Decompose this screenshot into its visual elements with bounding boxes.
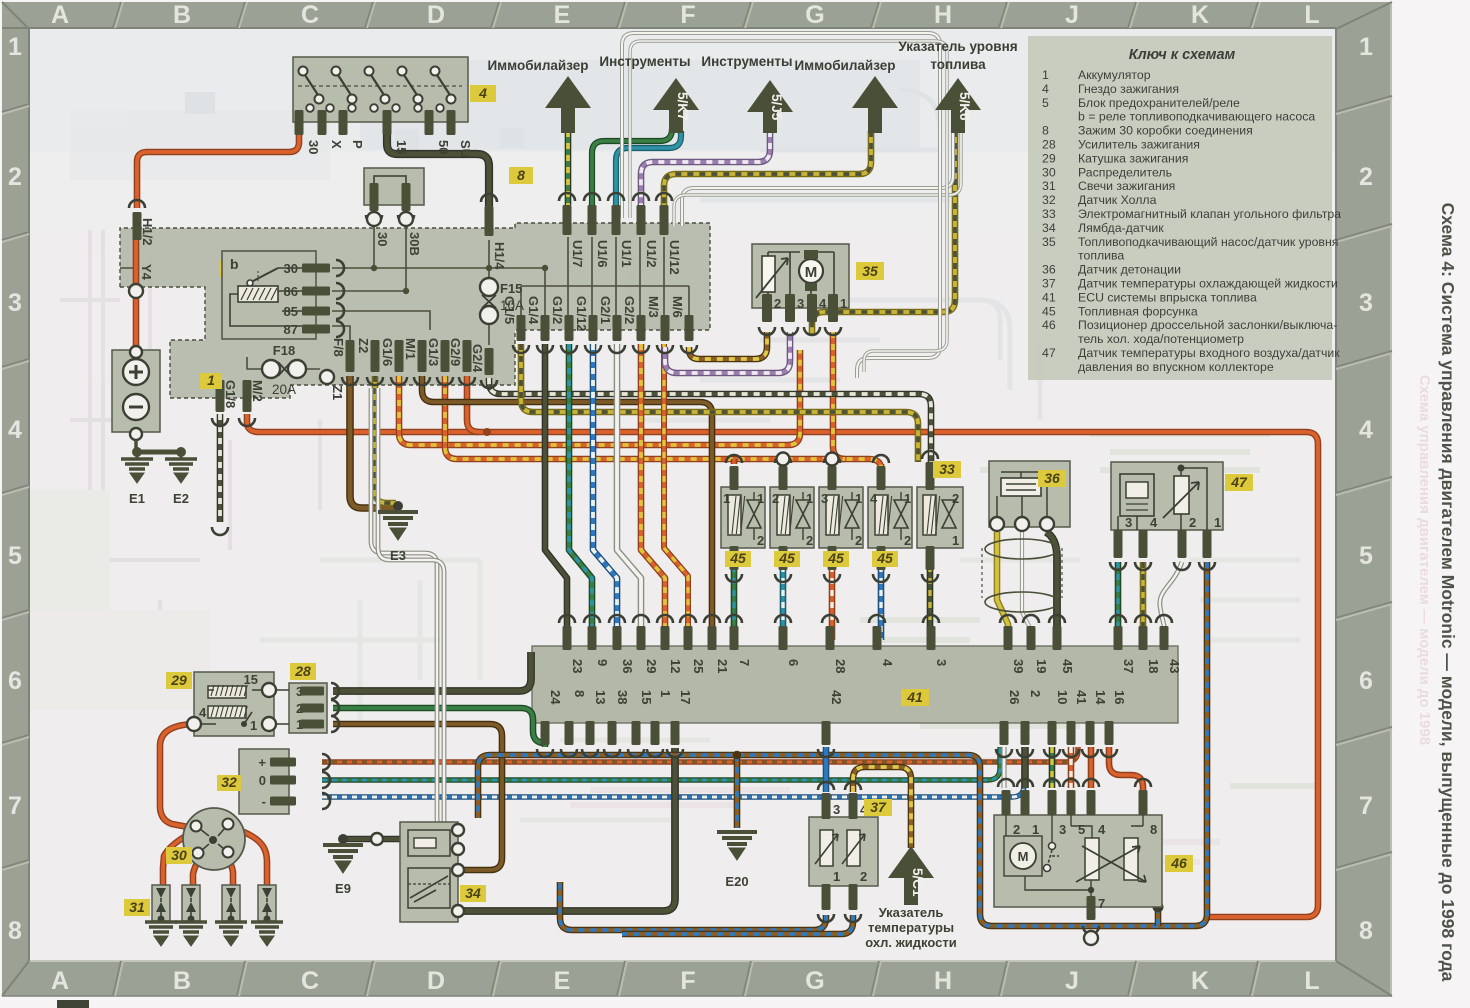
svg-text:топлива: топлива [1078, 249, 1124, 263]
svg-text:температуры: температуры [868, 920, 954, 935]
svg-text:Лямбда-датчик: Лямбда-датчик [1078, 221, 1164, 235]
svg-text:7: 7 [737, 659, 752, 666]
svg-text:10: 10 [1055, 690, 1070, 704]
svg-text:9: 9 [595, 659, 610, 666]
svg-text:A: A [51, 967, 69, 995]
svg-text:0: 0 [259, 773, 266, 788]
svg-text:2: 2 [904, 533, 911, 548]
svg-text:Датчик Холла: Датчик Холла [1078, 193, 1157, 207]
svg-text:1: 1 [8, 33, 22, 61]
svg-text:топлива: топлива [930, 57, 986, 72]
svg-text:4: 4 [1042, 82, 1049, 96]
svg-text:2: 2 [772, 491, 779, 506]
svg-text:47: 47 [1230, 474, 1248, 490]
svg-text:2: 2 [952, 491, 959, 506]
svg-text:Указатель уровня: Указатель уровня [898, 39, 1017, 54]
svg-text:U1/7: U1/7 [570, 240, 585, 267]
svg-text:G2/9: G2/9 [448, 338, 463, 366]
svg-text:Схема 4: Система управления дв: Схема 4: Система управления двигателем M… [1438, 203, 1458, 982]
svg-text:5: 5 [1078, 822, 1085, 837]
svg-text:46: 46 [1170, 855, 1187, 871]
svg-text:U1/6: U1/6 [595, 240, 610, 267]
svg-text:36: 36 [1044, 470, 1060, 486]
svg-text:G: G [805, 1, 824, 29]
svg-text:37: 37 [1121, 659, 1136, 673]
svg-text:6: 6 [8, 667, 22, 695]
svg-text:Y4: Y4 [139, 264, 154, 281]
svg-text:18: 18 [1146, 659, 1161, 673]
svg-text:29: 29 [1042, 151, 1056, 165]
svg-text:8: 8 [572, 690, 587, 697]
svg-text:G1/2: G1/2 [550, 296, 565, 324]
svg-text:6: 6 [786, 659, 801, 666]
svg-text:-: - [262, 794, 266, 809]
svg-text:37: 37 [1042, 277, 1056, 291]
svg-text:Датчик детонации: Датчик детонации [1078, 263, 1181, 277]
svg-text:47: 47 [1042, 346, 1056, 360]
svg-text:Гнездо зажигания: Гнездо зажигания [1078, 82, 1179, 96]
svg-text:3: 3 [8, 289, 22, 317]
svg-text:4: 4 [819, 296, 827, 311]
svg-text:6: 6 [1359, 667, 1373, 695]
svg-text:21: 21 [715, 659, 730, 673]
svg-text:33: 33 [1042, 207, 1056, 221]
svg-text:4: 4 [1359, 416, 1373, 444]
svg-text:26: 26 [1007, 690, 1022, 704]
svg-text:29: 29 [170, 672, 187, 688]
svg-text:Указатель: Указатель [879, 905, 944, 920]
svg-text:5/K7: 5/K7 [675, 92, 690, 121]
svg-text:5: 5 [1359, 542, 1373, 570]
svg-text:13: 13 [593, 690, 608, 704]
svg-text:B: B [173, 1, 191, 29]
svg-text:20A: 20A [272, 382, 296, 397]
svg-text:C: C [301, 967, 319, 995]
svg-text:8: 8 [517, 167, 525, 183]
svg-text:G2/2: G2/2 [622, 296, 637, 324]
svg-text:B: B [173, 967, 191, 995]
svg-text:E3: E3 [390, 548, 406, 563]
svg-text:23: 23 [570, 659, 585, 673]
svg-text:5: 5 [8, 542, 22, 570]
svg-text:45: 45 [1042, 304, 1056, 318]
svg-text:E1: E1 [129, 491, 145, 506]
svg-text:12: 12 [668, 659, 683, 673]
svg-text:SU: SU [458, 140, 473, 158]
svg-text:8: 8 [8, 917, 22, 945]
svg-text:14: 14 [1093, 690, 1108, 705]
svg-text:F: F [680, 967, 695, 995]
svg-text:28: 28 [1042, 138, 1056, 152]
svg-text:F18: F18 [273, 343, 295, 358]
svg-text:30: 30 [171, 847, 187, 863]
svg-text:3: 3 [797, 296, 804, 311]
svg-text:G1/8: G1/8 [223, 380, 238, 408]
svg-text:M: M [1018, 849, 1029, 864]
svg-text:E9: E9 [335, 881, 351, 896]
svg-text:25: 25 [691, 659, 706, 673]
svg-text:2: 2 [860, 869, 867, 884]
svg-text:Z2: Z2 [356, 338, 371, 353]
svg-text:2: 2 [1028, 690, 1043, 697]
svg-text:8: 8 [1150, 822, 1157, 837]
svg-text:4: 4 [8, 416, 22, 444]
svg-text:28: 28 [294, 663, 311, 679]
svg-text:Зажим 30 коробки соединения: Зажим 30 коробки соединения [1078, 124, 1253, 138]
svg-text:39: 39 [1011, 659, 1026, 673]
svg-text:87: 87 [284, 322, 298, 337]
svg-text:7: 7 [1359, 792, 1373, 820]
svg-text:1: 1 [952, 533, 959, 548]
svg-text:7: 7 [8, 792, 22, 820]
svg-text:C: C [301, 1, 319, 29]
svg-text:34: 34 [465, 885, 481, 901]
svg-text:H1/4: H1/4 [492, 242, 507, 270]
svg-text:M: M [805, 264, 818, 281]
svg-text:41: 41 [1042, 290, 1056, 304]
svg-text:U1/12: U1/12 [667, 240, 682, 275]
svg-text:2: 2 [774, 296, 781, 311]
svg-text:Свечи зажигания: Свечи зажигания [1078, 179, 1175, 193]
svg-text:7: 7 [1098, 896, 1105, 911]
svg-text:Топливоподкачивающий насос/дат: Топливоподкачивающий насос/датчик уровня [1078, 235, 1338, 249]
svg-text:1: 1 [806, 491, 813, 506]
svg-text:30: 30 [284, 261, 298, 276]
svg-text:37: 37 [870, 799, 887, 815]
svg-text:Иммобилайзер: Иммобилайзер [794, 58, 895, 73]
svg-text:F15: F15 [500, 281, 522, 296]
svg-text:1: 1 [904, 491, 911, 506]
svg-text:J: J [1065, 1, 1079, 29]
svg-text:Электромагнитный клапан угольн: Электромагнитный клапан угольного фильтр… [1078, 207, 1341, 221]
svg-text:1: 1 [1032, 822, 1039, 837]
svg-text:5/K6: 5/K6 [957, 92, 972, 121]
svg-text:Топливная форсунка: Топливная форсунка [1078, 304, 1198, 318]
svg-text:41: 41 [906, 689, 923, 705]
svg-text:G1/12: G1/12 [574, 296, 589, 331]
svg-text:32: 32 [221, 774, 237, 790]
svg-text:1: 1 [658, 690, 673, 697]
svg-text:2: 2 [1189, 515, 1196, 530]
svg-text:42: 42 [829, 690, 844, 704]
svg-text:4: 4 [880, 659, 895, 667]
svg-text:2: 2 [855, 533, 862, 548]
svg-text:4: 4 [1150, 515, 1158, 530]
svg-text:M/2: M/2 [250, 380, 265, 402]
svg-text:1: 1 [855, 491, 862, 506]
svg-text:31: 31 [1042, 179, 1056, 193]
svg-text:5: 5 [1042, 96, 1049, 110]
svg-text:45: 45 [1060, 659, 1075, 673]
svg-text:15: 15 [639, 690, 654, 704]
svg-text:4: 4 [870, 491, 878, 506]
svg-text:41: 41 [1074, 690, 1089, 704]
svg-text:G: G [805, 967, 824, 995]
svg-text:2: 2 [8, 163, 22, 191]
svg-text:8: 8 [1042, 124, 1049, 138]
svg-text:3: 3 [821, 491, 828, 506]
svg-text:M/6: M/6 [670, 296, 685, 318]
svg-text:M/1: M/1 [403, 338, 418, 360]
svg-text:тель хол. хода/потенциометр: тель хол. хода/потенциометр [1078, 332, 1244, 346]
svg-text:K: K [1191, 967, 1209, 995]
svg-text:Схема управления двигателем —: Схема управления двигателем — модели до … [1416, 375, 1433, 745]
svg-text:b = реле топливоподкачивающего: b = реле топливоподкачивающего насоса [1078, 110, 1315, 124]
svg-text:3: 3 [1059, 822, 1066, 837]
svg-text:L: L [1304, 1, 1319, 29]
svg-text:Катушка зажигания: Катушка зажигания [1078, 151, 1188, 165]
svg-text:G1/6: G1/6 [380, 338, 395, 366]
svg-text:Ключ к схемам: Ключ к схемам [1129, 47, 1236, 63]
svg-text:15: 15 [244, 672, 258, 687]
svg-text:F/8: F/8 [331, 338, 346, 357]
svg-text:45: 45 [729, 550, 746, 566]
svg-text:F: F [680, 1, 695, 29]
svg-text:28: 28 [833, 659, 848, 673]
svg-text:43: 43 [1167, 659, 1182, 673]
svg-text:1: 1 [1042, 68, 1049, 82]
svg-text:1: 1 [250, 718, 257, 733]
svg-text:G1/3: G1/3 [426, 338, 441, 366]
svg-text:17: 17 [678, 690, 693, 704]
svg-text:1: 1 [833, 869, 840, 884]
svg-text:46: 46 [1042, 318, 1056, 332]
svg-text:30: 30 [1042, 165, 1056, 179]
svg-text:G2/4: G2/4 [470, 344, 485, 373]
svg-text:Инструменты: Инструменты [701, 54, 792, 69]
svg-text:Z1: Z1 [330, 385, 345, 400]
svg-text:давления во впускном коллектор: давления во впускном коллекторе [1078, 360, 1274, 374]
svg-text:85: 85 [284, 304, 298, 319]
svg-text:Позиционер дроссельной заслонк: Позиционер дроссельной заслонки/выключа- [1078, 318, 1337, 332]
svg-text:29: 29 [644, 659, 659, 673]
svg-text:86: 86 [284, 284, 298, 299]
svg-text:30: 30 [306, 140, 321, 154]
svg-text:ECU системы впрыска топлива: ECU системы впрыска топлива [1078, 290, 1257, 304]
svg-text:1: 1 [757, 491, 764, 506]
svg-text:32: 32 [1042, 193, 1056, 207]
svg-text:+: + [258, 755, 266, 770]
svg-text:3: 3 [934, 659, 949, 666]
svg-text:G1/5: G1/5 [502, 296, 517, 324]
svg-text:H1/2: H1/2 [140, 218, 155, 245]
svg-text:D: D [427, 1, 445, 29]
svg-text:45: 45 [876, 550, 893, 566]
svg-text:L: L [1304, 967, 1319, 995]
svg-text:19: 19 [1034, 659, 1049, 673]
svg-text:Иммобилайзер: Иммобилайзер [487, 58, 588, 73]
svg-text:34: 34 [1042, 221, 1056, 235]
svg-text:Аккумулятор: Аккумулятор [1078, 68, 1151, 82]
svg-text:4: 4 [199, 705, 207, 720]
svg-text:5/J5: 5/J5 [769, 94, 784, 121]
svg-text:24: 24 [548, 690, 563, 705]
svg-text:35: 35 [1042, 235, 1056, 249]
svg-text:1: 1 [723, 491, 730, 506]
svg-text:16: 16 [1112, 690, 1127, 704]
svg-text:Распределитель: Распределитель [1078, 165, 1172, 179]
svg-text:2: 2 [1359, 163, 1373, 191]
svg-text:2: 2 [806, 533, 813, 548]
svg-text:H: H [934, 1, 952, 29]
svg-text:1: 1 [840, 296, 847, 311]
svg-text:4: 4 [478, 85, 487, 101]
svg-text:охл. жидкости: охл. жидкости [865, 935, 956, 950]
svg-text:4: 4 [1098, 822, 1106, 837]
svg-text:3: 3 [833, 802, 840, 817]
svg-text:30: 30 [375, 232, 390, 246]
svg-text:1: 1 [1359, 33, 1373, 61]
svg-text:E20: E20 [725, 874, 748, 889]
svg-text:33: 33 [939, 461, 955, 477]
svg-text:50: 50 [436, 140, 451, 154]
svg-text:2: 2 [757, 533, 764, 548]
svg-text:E: E [554, 1, 571, 29]
svg-text:Датчик температуры охлаждающей: Датчик температуры охлаждающей жидкости [1078, 277, 1338, 291]
svg-text:G2/1: G2/1 [598, 296, 613, 324]
svg-text:38: 38 [615, 690, 630, 704]
svg-text:Инструменты: Инструменты [599, 54, 690, 69]
svg-text:5/C1: 5/C1 [910, 868, 925, 897]
svg-text:45: 45 [827, 550, 844, 566]
svg-text:36: 36 [1042, 263, 1056, 277]
svg-text:X: X [329, 140, 344, 149]
svg-text:1: 1 [1214, 515, 1221, 530]
svg-text:U1/1: U1/1 [619, 240, 634, 267]
svg-text:3: 3 [1359, 289, 1373, 317]
svg-text:E: E [554, 967, 571, 995]
svg-text:P: P [350, 140, 365, 149]
svg-text:31: 31 [129, 899, 145, 915]
svg-text:15: 15 [394, 140, 409, 154]
svg-text:A: A [51, 1, 69, 29]
svg-text:D: D [427, 967, 445, 995]
svg-text:E2: E2 [173, 491, 189, 506]
svg-text:1: 1 [207, 372, 215, 388]
svg-text:U1/2: U1/2 [644, 240, 659, 267]
svg-text:Усилитель зажигания: Усилитель зажигания [1078, 138, 1200, 152]
svg-text:8: 8 [1359, 917, 1373, 945]
svg-text:30B: 30B [407, 232, 422, 256]
svg-text:Датчик температуры входного во: Датчик температуры входного воздуха/датч… [1078, 346, 1340, 360]
svg-text:J: J [1065, 967, 1079, 995]
svg-text:36: 36 [620, 659, 635, 673]
svg-text:35: 35 [862, 263, 878, 279]
svg-text:2: 2 [1013, 822, 1020, 837]
svg-text:Блок предохранителей/реле: Блок предохранителей/реле [1078, 96, 1240, 110]
svg-text:K: K [1191, 1, 1209, 29]
svg-text:3: 3 [1125, 515, 1132, 530]
svg-text:b: b [230, 256, 239, 272]
svg-text:G1/4: G1/4 [526, 296, 541, 325]
svg-text:H: H [934, 967, 952, 995]
svg-text:M/3: M/3 [646, 296, 661, 318]
svg-text:45: 45 [778, 550, 795, 566]
